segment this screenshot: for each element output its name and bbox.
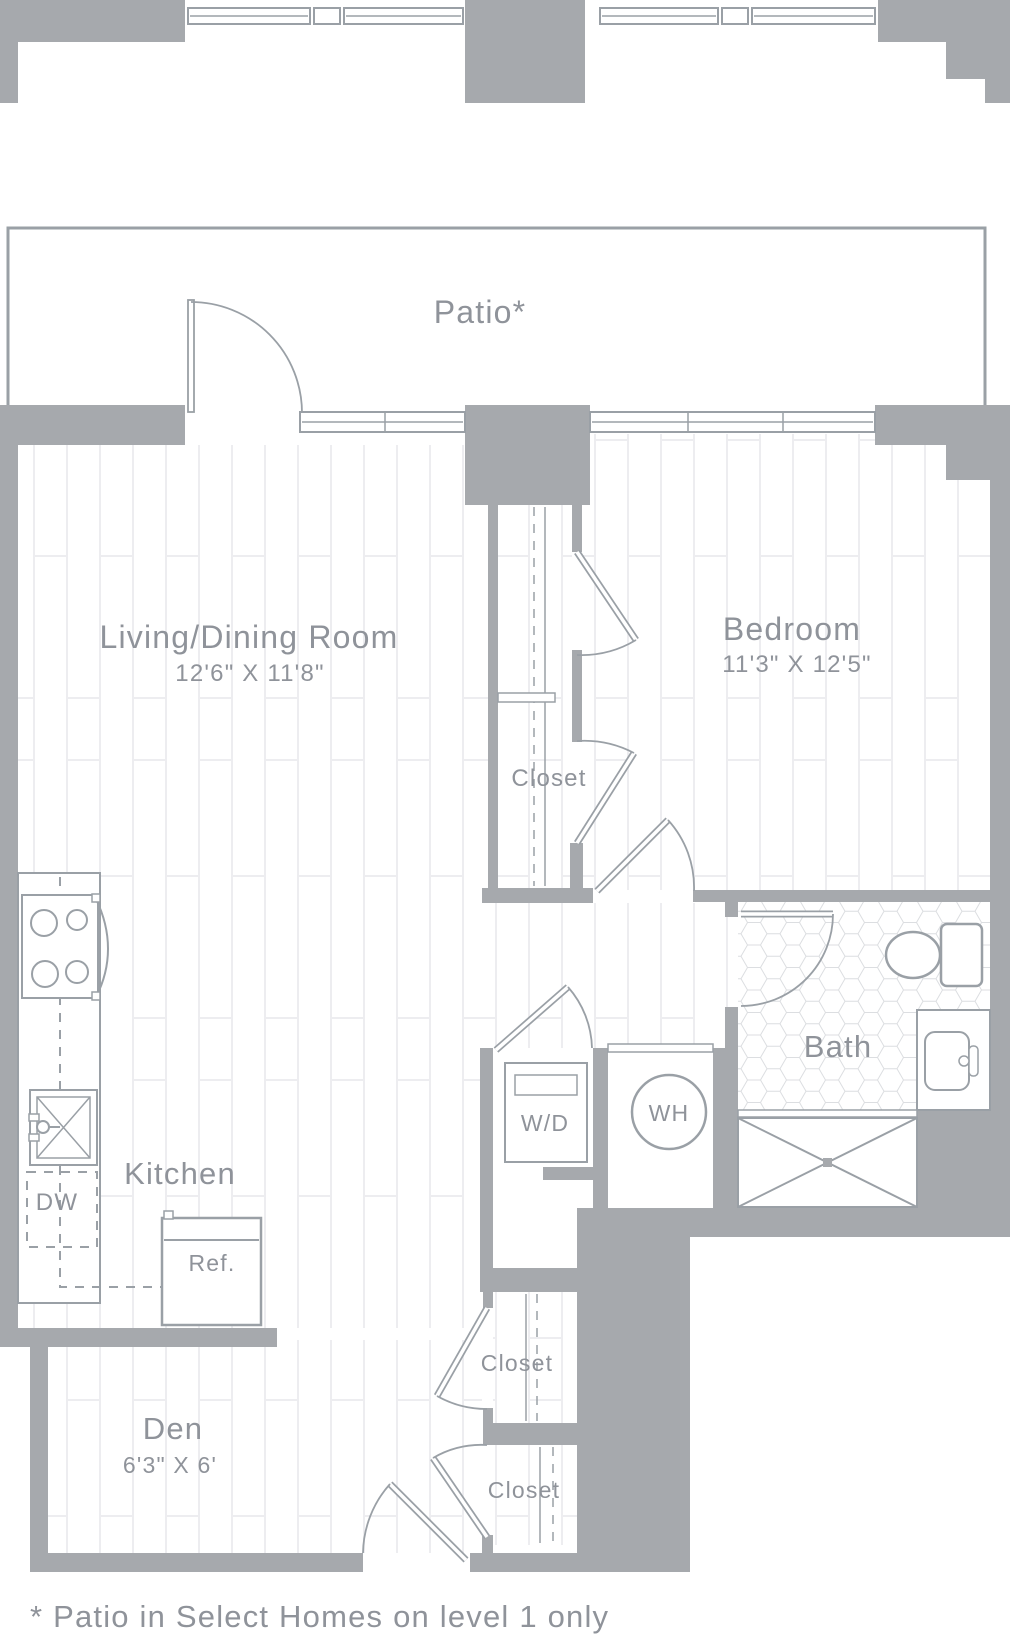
wall-segment <box>572 650 582 742</box>
kitchen-label: Kitchen <box>124 1156 236 1191</box>
window-mullion <box>314 8 340 24</box>
oven-handle-end <box>92 992 100 1000</box>
bathtub-drain <box>823 1158 832 1167</box>
wall-segment <box>725 1007 738 1112</box>
wall-segment <box>488 505 498 888</box>
wall-segment <box>725 901 738 917</box>
den-label: Den <box>143 1411 203 1446</box>
wall-segment <box>946 445 1010 480</box>
wall-segment <box>572 505 582 552</box>
wall-segment <box>30 1553 363 1572</box>
wall-segment <box>693 890 1010 902</box>
wall-segment <box>0 0 18 103</box>
wall-segment <box>570 843 583 888</box>
wall-segment <box>543 1167 593 1180</box>
wall-segment <box>465 405 590 505</box>
footnote: * Patio in Select Homes on level 1 only <box>30 1599 609 1634</box>
wall-segment <box>480 1048 493 1280</box>
wall-segment <box>483 1292 493 1308</box>
window-mullion <box>722 8 748 24</box>
living-room-label: Living/Dining Room <box>99 619 398 655</box>
range-stove <box>22 895 98 998</box>
vanity-faucet-knob <box>959 1056 969 1066</box>
dishwasher-label: DW <box>36 1189 78 1216</box>
living-room-dimensions: 12'6" X 11'8" <box>175 660 324 687</box>
wall-segment <box>465 0 585 103</box>
refrigerator-handle <box>164 1211 173 1219</box>
wall-segment <box>482 888 593 903</box>
vanity-faucet <box>969 1046 978 1076</box>
exterior-walls <box>0 0 1010 103</box>
den-dimensions: 6'3" X 6' <box>123 1452 217 1478</box>
oven-handle-end <box>92 894 100 902</box>
bath-label: Bath <box>804 1029 873 1064</box>
wall-segment <box>878 0 1010 42</box>
faucet <box>37 1121 49 1133</box>
wall-segment <box>30 1340 48 1572</box>
toilet-tank <box>941 924 982 986</box>
hall-closet-upper-label: Closet <box>481 1350 553 1376</box>
wall-segment <box>0 405 185 445</box>
wall-segment <box>0 405 18 1347</box>
wall-segment <box>577 1208 690 1572</box>
floor-plan-page: Patio* Living/Dining Room 12'6" X 11'8" … <box>0 0 1010 1644</box>
faucet-handle <box>29 1134 39 1141</box>
washer-dryer-label: W/D <box>521 1110 569 1136</box>
wall-segment <box>917 1110 1010 1208</box>
water-heater-closet-door <box>608 1044 713 1052</box>
hall-closet-lower-label: Closet <box>488 1477 560 1503</box>
faucet-handle <box>29 1114 39 1121</box>
water-heater-label: WH <box>649 1100 690 1126</box>
den-floor <box>48 1340 482 1553</box>
bedroom-label: Bedroom <box>723 611 861 647</box>
wall-segment <box>946 42 1010 79</box>
patio-label: Patio* <box>434 294 527 330</box>
refrigerator-label: Ref. <box>189 1250 236 1276</box>
wall-segment <box>985 79 1010 103</box>
shower-rod <box>738 1110 917 1117</box>
wall-segment <box>480 1268 577 1292</box>
main-closet-label: Closet <box>511 765 586 792</box>
patio-door-leaf <box>188 300 194 412</box>
floor-plan-drawing: Patio* Living/Dining Room 12'6" X 11'8" … <box>0 0 1010 1644</box>
wall-segment <box>470 1553 577 1572</box>
wall-segment <box>483 1423 577 1445</box>
wall-segment <box>0 0 185 42</box>
patio-door-swing <box>191 302 302 413</box>
floor-finishes <box>18 434 990 1553</box>
wall-segment <box>593 1048 608 1208</box>
wall-segment <box>875 405 1010 445</box>
toilet-bowl <box>886 932 940 978</box>
closet-shelf <box>498 693 555 702</box>
wall-segment <box>483 1408 493 1423</box>
wall-segment <box>0 1328 277 1347</box>
bedroom-dimensions: 11'3" X 12'5" <box>722 651 871 678</box>
